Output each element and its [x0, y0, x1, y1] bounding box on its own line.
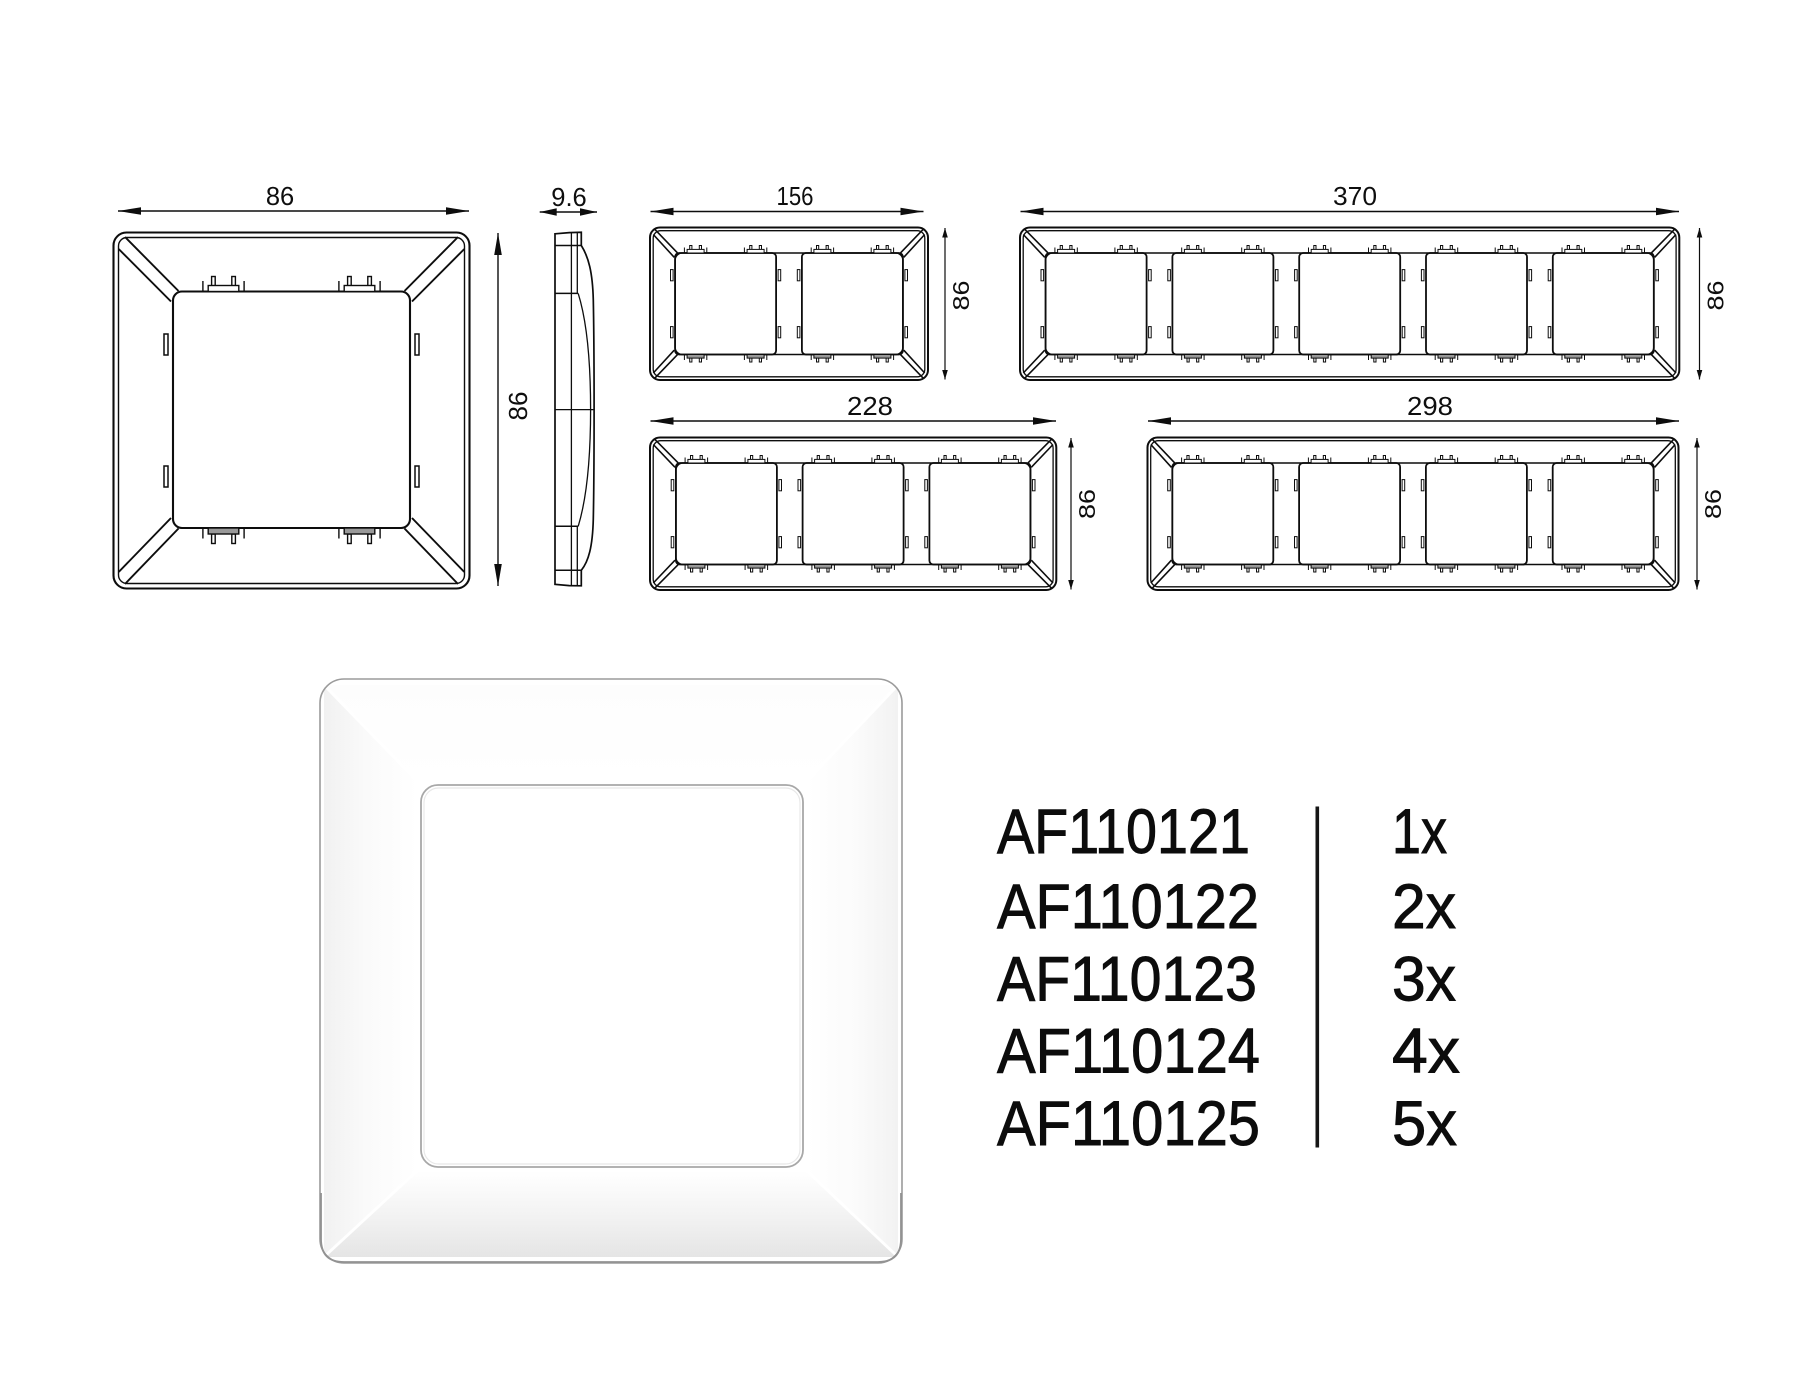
- svg-text:5x: 5x: [1392, 1089, 1457, 1159]
- svg-text:AF110125: AF110125: [997, 1089, 1260, 1159]
- svg-text:2x: 2x: [1392, 872, 1456, 942]
- svg-text:3x: 3x: [1392, 945, 1456, 1015]
- svg-text:4x: 4x: [1392, 1017, 1460, 1087]
- svg-text:156: 156: [777, 183, 814, 211]
- svg-text:228: 228: [847, 393, 893, 421]
- svg-text:AF110124: AF110124: [997, 1017, 1260, 1087]
- svg-text:370: 370: [1333, 183, 1377, 211]
- svg-text:9.6: 9.6: [551, 184, 586, 212]
- svg-text:298: 298: [1407, 393, 1453, 421]
- svg-text:AF110122: AF110122: [997, 872, 1259, 942]
- svg-text:86: 86: [266, 183, 294, 211]
- svg-text:1x: 1x: [1392, 797, 1447, 867]
- svg-text:AF110121: AF110121: [997, 797, 1250, 867]
- svg-text:86: 86: [1074, 489, 1100, 519]
- svg-text:86: 86: [503, 392, 533, 421]
- svg-text:86: 86: [1700, 489, 1726, 519]
- svg-text:86: 86: [1703, 281, 1729, 311]
- svg-text:AF110123: AF110123: [997, 945, 1257, 1015]
- svg-text:86: 86: [948, 281, 974, 311]
